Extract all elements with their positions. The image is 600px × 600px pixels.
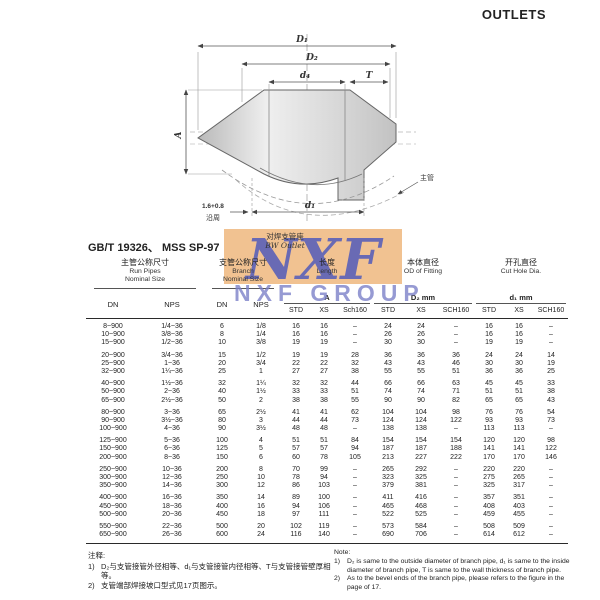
standard-heading: GB/T 19326、 MSS SP-97 (88, 239, 219, 255)
table-cell: – (438, 331, 474, 339)
table-cell: 51 (310, 437, 338, 445)
table-cell: 120 (474, 437, 504, 445)
table-cell: – (338, 482, 372, 490)
table-cell: 55 (404, 368, 438, 376)
table-body: 8~9001/4~3661/81616–2424–1616–10~9003/8~… (86, 319, 568, 539)
table-cell: 12 (240, 482, 282, 490)
run-pipe-outline-2 (236, 180, 404, 215)
table-cell: 200~900 (86, 454, 140, 462)
table-end-rule (86, 543, 568, 544)
table-cell: 89 (282, 494, 310, 502)
table-cell: 100 (204, 437, 240, 445)
table-cell: 41 (310, 409, 338, 417)
table-row: 50~9002~36401½333351747471515138 (86, 388, 568, 396)
table-cell: 90~900 (86, 417, 140, 425)
table-cell: 19 (282, 352, 310, 360)
dim-label-weld: 1.6+0.8 (202, 203, 224, 210)
table-cell: 220 (504, 466, 534, 474)
table-cell: 27 (282, 368, 310, 376)
table-cell: 86 (282, 482, 310, 490)
table-cell: 105 (338, 454, 372, 462)
table-cell: 227 (404, 454, 438, 462)
row-group: 125~9005~3610045151841541541541201209815… (86, 437, 568, 462)
table-cell: 10~36 (140, 466, 204, 474)
table-cell: 15~900 (86, 339, 140, 347)
table-cell: – (338, 466, 372, 474)
note-text: D₂ is same to the outside diameter of br… (347, 558, 570, 575)
table-cell: 509 (504, 523, 534, 531)
table-cell: 25~900 (86, 360, 140, 368)
table-cell: 84 (338, 437, 372, 445)
notes-cn-title: 注释: (88, 551, 336, 561)
table-cell: 6~36 (140, 445, 204, 453)
table-cell: – (338, 531, 372, 539)
table-cell: 74 (404, 388, 438, 396)
table-cell: 73 (338, 417, 372, 425)
table-cell: – (338, 323, 372, 331)
table-row: 32~9001¼~36251272738555551363625 (86, 368, 568, 376)
table-cell: 40 (204, 388, 240, 396)
table-cell: 24 (474, 352, 504, 360)
group-length-en: Length (282, 268, 372, 276)
dim-label-d1-bottom: d₁ (305, 201, 315, 211)
table-cell: 15 (204, 352, 240, 360)
table-cell: 614 (474, 531, 504, 539)
table-cell: 26 (372, 331, 404, 339)
table-cell: 6 (240, 454, 282, 462)
table-cell: 141 (504, 445, 534, 453)
table-cell: 1¼~36 (140, 368, 204, 376)
dim-label-weld-note: 沿周 (206, 213, 220, 222)
note-marker: 2) (334, 575, 347, 592)
table-cell: 16 (504, 331, 534, 339)
table-cell: 78 (310, 454, 338, 462)
table-cell: 73 (534, 417, 568, 425)
table-cell: 99 (310, 466, 338, 474)
table-cell: 24 (404, 323, 438, 331)
table-cell: 154 (404, 437, 438, 445)
table-cell: 300~900 (86, 474, 140, 482)
col-d1-sch160: SCH160 (534, 304, 568, 316)
table-cell: 90 (372, 397, 404, 405)
table-row: 8~9001/4~3661/81616–2424–1616– (86, 323, 568, 331)
group-cuthole-en: Cut Hole Dia. (474, 268, 568, 276)
note-text: 支管端部焊接坡口型式见17页图示。 (101, 581, 336, 591)
table-cell: – (338, 494, 372, 502)
table-cell: 222 (438, 454, 474, 462)
group-run-en2: Nominal Size (86, 276, 204, 284)
table-cell: 220 (474, 466, 504, 474)
table-cell: 65 (474, 397, 504, 405)
table-cell: 200 (204, 466, 240, 474)
table-cell: 66 (372, 380, 404, 388)
table-cell: 3/4 (240, 360, 282, 368)
table-cell: 48 (310, 425, 338, 433)
table-cell: 357 (474, 494, 504, 502)
table-cell: 25 (534, 368, 568, 376)
table-cell: – (534, 425, 568, 433)
table-cell: 3/8~36 (140, 331, 204, 339)
table-cell: 57 (310, 445, 338, 453)
table-cell: 325 (404, 474, 438, 482)
table-cell: 26 (404, 331, 438, 339)
table-cell: 403 (504, 503, 534, 511)
table-cell: 98 (534, 437, 568, 445)
table-row: 125~9005~36100451518415415415412012098 (86, 437, 568, 445)
table-row: 65~9002½~36502383855909082656543 (86, 397, 568, 405)
table-cell: 1/4 (240, 331, 282, 339)
note-marker: 1) (88, 562, 101, 581)
group-branch-cn: 支管公称尺寸 (204, 258, 282, 268)
table-row: 500~90020~364501897111–522525–459455– (86, 511, 568, 519)
table-cell: 48 (282, 425, 310, 433)
table-cell: 459 (474, 511, 504, 519)
table-cell: 1~36 (140, 360, 204, 368)
table-cell: 102 (282, 523, 310, 531)
table-cell: 141 (474, 445, 504, 453)
dim-label-d1: D₁ (295, 35, 308, 45)
table-cell: 90 (204, 425, 240, 433)
dim-label-a: A (174, 131, 184, 139)
table-cell: – (534, 323, 568, 331)
table-cell: 55 (338, 397, 372, 405)
note-cn-2: 2) 支管端部焊接坡口型式见17页图示。 (88, 581, 336, 591)
table-cell: 8~900 (86, 323, 140, 331)
table-cell: 50~900 (86, 388, 140, 396)
table-cell: 51 (474, 388, 504, 396)
bw-outlet-diagram: D₁ D₂ d₄ T A 1.6+0.8 沿周 d₁ 主管 (172, 28, 472, 228)
table-cell: 36 (404, 352, 438, 360)
table-cell: 16 (474, 323, 504, 331)
table-cell: 706 (404, 531, 438, 539)
table-cell: 350~900 (86, 482, 140, 490)
group-run-en1: Run Pipes (86, 268, 204, 276)
table-cell: 45 (474, 380, 504, 388)
table-cell: 43 (404, 360, 438, 368)
table-cell: – (534, 523, 568, 531)
table-cell: 57 (282, 445, 310, 453)
table-cell: 32 (282, 380, 310, 388)
table-cell: 150~900 (86, 445, 140, 453)
table-cell: 93 (474, 417, 504, 425)
table-cell: 19 (504, 339, 534, 347)
table-cell: 250~900 (86, 466, 140, 474)
table-cell: 122 (438, 417, 474, 425)
table-cell: 65~900 (86, 397, 140, 405)
table-cell: 54 (534, 409, 568, 417)
table-cell: 650~900 (86, 531, 140, 539)
table-cell: 125~900 (86, 437, 140, 445)
table-row: 80~9003~36652½41416210410498767654 (86, 409, 568, 417)
table-cell: – (338, 503, 372, 511)
table-cell: 43 (372, 360, 404, 368)
group-cuthole: 开孔直径 Cut Hole Dia. (474, 258, 568, 289)
table-cell: 51 (438, 368, 474, 376)
table-cell: 106 (310, 503, 338, 511)
table-cell: 74 (372, 388, 404, 396)
table-cell: 350 (204, 494, 240, 502)
row-group: 8~9001/4~3661/81616–2424–1616–10~9003/8~… (86, 323, 568, 348)
table-cell: 325 (474, 482, 504, 490)
table-cell: 33 (282, 388, 310, 396)
table-cell: – (438, 339, 474, 347)
table-cell: – (534, 482, 568, 490)
table-cell: 44 (282, 417, 310, 425)
table-cell: 40~900 (86, 380, 140, 388)
table-cell: 71 (438, 388, 474, 396)
table-cell: 63 (438, 380, 474, 388)
table-row: 350~90014~363001286103–379381–325317– (86, 482, 568, 490)
table-cell: 8 (240, 466, 282, 474)
table-cell: 16 (504, 323, 534, 331)
table-cell: 2½ (240, 409, 282, 417)
table-cell: 65 (204, 409, 240, 417)
table-cell: 50 (204, 397, 240, 405)
table-cell: 411 (372, 494, 404, 502)
table-row: 15~9001/2~36103/81919–3030–1919– (86, 339, 568, 347)
table-cell: 1½~36 (140, 380, 204, 388)
table-row: 10~9003/8~3681/41616–2626–1616– (86, 331, 568, 339)
table-cell: 98 (438, 409, 474, 417)
table-cell: 468 (404, 503, 438, 511)
table-cell: – (438, 531, 474, 539)
col-d1-xs: XS (504, 304, 534, 316)
table-cell: 10 (240, 474, 282, 482)
table-cell: 154 (438, 437, 474, 445)
table-cell: 32 (310, 380, 338, 388)
table-cell: 416 (404, 494, 438, 502)
table-cell: 30 (404, 339, 438, 347)
table-cell: 400 (204, 503, 240, 511)
table-cell: 66 (404, 380, 438, 388)
col-d2-sch160: SCH160 (438, 304, 474, 316)
col-run-dn: DN (86, 292, 140, 316)
table-cell: 351 (504, 494, 534, 502)
table-row: 25~9001~36203/4222232434346303019 (86, 360, 568, 368)
table-cell: 32~900 (86, 368, 140, 376)
table-row: 400~90016~363501489100–411416–357351– (86, 494, 568, 502)
table-cell: 265 (504, 474, 534, 482)
table-cell: 187 (404, 445, 438, 453)
note-en-2: 2) As to the bevel ends of the branch pi… (334, 575, 570, 592)
table-cell: 18~36 (140, 503, 204, 511)
table-cell: – (338, 511, 372, 519)
table-cell: 14 (534, 352, 568, 360)
table-cell: 24 (504, 352, 534, 360)
table-cell: – (438, 494, 474, 502)
table-cell: 18 (240, 511, 282, 519)
table-cell: 154 (372, 437, 404, 445)
table-cell: 275 (474, 474, 504, 482)
table-cell: 28 (338, 352, 372, 360)
table-cell: – (438, 511, 474, 519)
table-cell: 450 (204, 511, 240, 519)
table-cell: 584 (404, 523, 438, 531)
table-cell: – (534, 474, 568, 482)
table-cell: 104 (404, 409, 438, 417)
table-cell: – (438, 323, 474, 331)
table-row: 90~9003½~36803444473124124122939373 (86, 417, 568, 425)
table-cell: 188 (438, 445, 474, 453)
caption-en: BW Outlet (225, 242, 345, 251)
table-cell: 76 (474, 409, 504, 417)
note-en-1: 1) D₂ is same to the outside diameter of… (334, 558, 570, 575)
group-length-cn: 长度 (282, 258, 372, 268)
table-cell: 16~36 (140, 494, 204, 502)
notes-english: Note: 1) D₂ is same to the outside diame… (334, 549, 570, 592)
table-cell: 38 (534, 388, 568, 396)
table-cell: 5~36 (140, 437, 204, 445)
table-cell: 26~36 (140, 531, 204, 539)
table-cell: – (534, 331, 568, 339)
table-cell: 690 (372, 531, 404, 539)
table-cell: 170 (504, 454, 534, 462)
table-cell: 103 (310, 482, 338, 490)
table-cell: 300 (204, 482, 240, 490)
table-cell: – (438, 523, 474, 531)
table-cell: 500 (204, 523, 240, 531)
table-cell: 265 (372, 466, 404, 474)
table-cell: 94 (282, 503, 310, 511)
table-cell: 20 (204, 360, 240, 368)
table-cell: 60 (282, 454, 310, 462)
group-branch-en1: Branch (204, 268, 282, 276)
table-cell: 32 (204, 380, 240, 388)
table-row: 40~9001½~36321¼323244666663454533 (86, 380, 568, 388)
table-cell: 124 (404, 417, 438, 425)
table-cell: 24 (240, 531, 282, 539)
table-cell: 19 (534, 360, 568, 368)
table-row: 20~9003/4~36151/2191928363636242414 (86, 352, 568, 360)
table-cell: 1 (240, 368, 282, 376)
table-cell: 3/4~36 (140, 352, 204, 360)
table-cell: 8 (204, 331, 240, 339)
table-cell: 4 (240, 437, 282, 445)
table-cell: 22~36 (140, 523, 204, 531)
table-cell: – (438, 474, 474, 482)
table-cell: 124 (372, 417, 404, 425)
table-cell: 30 (474, 360, 504, 368)
table-cell: 116 (282, 531, 310, 539)
table-cell: 317 (504, 482, 534, 490)
table-cell: 573 (372, 523, 404, 531)
table-cell: 187 (372, 445, 404, 453)
table-cell: 3½~36 (140, 417, 204, 425)
table-cell: 250 (204, 474, 240, 482)
table-cell: 82 (438, 397, 474, 405)
table-cell: 97 (282, 511, 310, 519)
table-cell: 14 (240, 494, 282, 502)
table-cell: 104 (372, 409, 404, 417)
table-cell: 38 (338, 368, 372, 376)
table-cell: 1/2~36 (140, 339, 204, 347)
table-cell: 20~900 (86, 352, 140, 360)
table-cell: 120 (504, 437, 534, 445)
table-cell: 16 (282, 323, 310, 331)
table-cell: 1/4~36 (140, 323, 204, 331)
table-cell: 62 (338, 409, 372, 417)
table-cell: 46 (438, 360, 474, 368)
table-cell: 25 (204, 368, 240, 376)
row-group: 40~9001½~36321¼32324466666345453350~9002… (86, 380, 568, 405)
table-cell: – (338, 523, 372, 531)
watermark-name: NXF GROUP (234, 280, 425, 307)
col-run-nps: NPS (140, 292, 204, 316)
table-cell: 20~36 (140, 511, 204, 519)
table-cell: 100~900 (86, 425, 140, 433)
table-cell: 22 (310, 360, 338, 368)
note-cn-1: 1) D₂与支管接管外径相等、d₁与支管接管内径相等、T与支管接管壁厚相等。 (88, 562, 336, 581)
table-cell: 3~36 (140, 409, 204, 417)
table-row: 550~90022~3650020102119–573584–508509– (86, 523, 568, 531)
table-cell: 45 (504, 380, 534, 388)
table-cell: 323 (372, 474, 404, 482)
table-cell: 113 (474, 425, 504, 433)
table-cell: – (534, 531, 568, 539)
table-cell: 80~900 (86, 409, 140, 417)
table-cell: 36 (438, 352, 474, 360)
table-cell: – (534, 494, 568, 502)
table-cell: – (534, 466, 568, 474)
table-cell: 36 (504, 368, 534, 376)
table-cell: 146 (534, 454, 568, 462)
table-cell: 1½ (240, 388, 282, 396)
table-cell: 16 (474, 331, 504, 339)
group-run-pipes: 主管公称尺寸 Run Pipes Nominal Size (86, 258, 204, 289)
table-cell: – (534, 339, 568, 347)
table-cell: 450~900 (86, 503, 140, 511)
notes-en-title: Note: (334, 549, 570, 557)
group-od-en: OD of Fitting (372, 268, 474, 276)
table-cell: 213 (372, 454, 404, 462)
table-cell: 522 (372, 511, 404, 519)
table-cell: 65 (504, 397, 534, 405)
table-cell: 500~900 (86, 511, 140, 519)
table-row: 250~90010~3620087099–265292–220220– (86, 466, 568, 474)
page-title: OUTLETS (482, 7, 546, 22)
table-cell: 55 (372, 368, 404, 376)
table-cell: 30 (504, 360, 534, 368)
table-cell: 138 (372, 425, 404, 433)
table-cell: 90 (404, 397, 438, 405)
table-cell: 111 (310, 511, 338, 519)
table-cell: 119 (310, 523, 338, 531)
table-cell: 19 (310, 352, 338, 360)
dim-d1-columns: d₁ mm STD XS SCH160 (474, 292, 568, 316)
table-cell: 51 (504, 388, 534, 396)
table-cell: 19 (282, 339, 310, 347)
table-cell: – (438, 425, 474, 433)
table-cell: 100 (310, 494, 338, 502)
table-row: 650~90026~3660024116140–690706–614612– (86, 531, 568, 539)
table-row: 450~90018~364001694106–465468–408403– (86, 503, 568, 511)
table-cell: 113 (504, 425, 534, 433)
table-cell: 33 (310, 388, 338, 396)
table-cell: 3/8 (240, 339, 282, 347)
table-cell: 138 (404, 425, 438, 433)
table-row: 200~9008~3615066078105213227222170170146 (86, 454, 568, 462)
table-cell: – (534, 503, 568, 511)
diagram-caption: 对焊支管座 BW Outlet (225, 233, 345, 250)
table-cell: 550~900 (86, 523, 140, 531)
table-cell: 14~36 (140, 482, 204, 490)
table-cell: 94 (338, 445, 372, 453)
table-cell: 41 (282, 409, 310, 417)
group-run-cn: 主管公称尺寸 (86, 258, 204, 268)
row-group: 550~90022~3650020102119–573584–508509–65… (86, 523, 568, 539)
table-cell: 150 (204, 454, 240, 462)
table-cell: 20 (240, 523, 282, 531)
